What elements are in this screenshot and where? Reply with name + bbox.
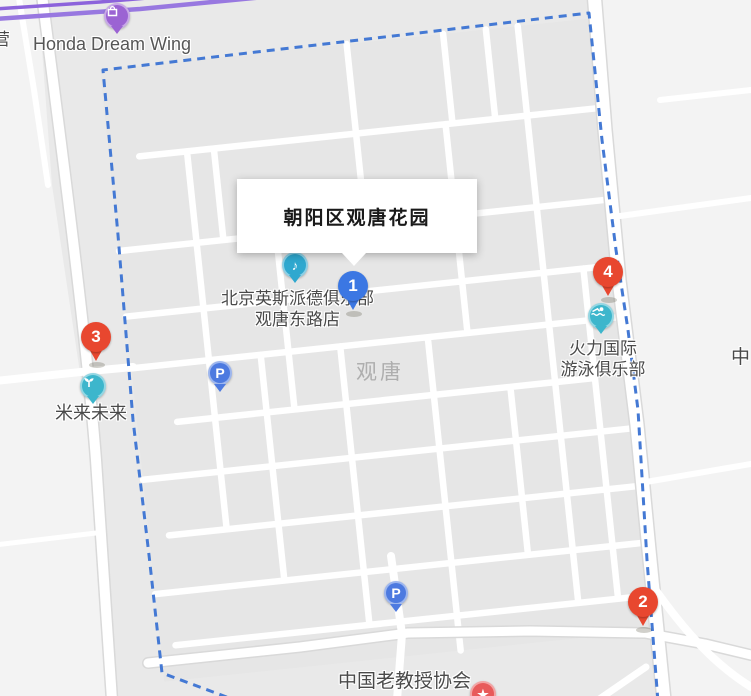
info-window-title: 朝阳区观唐花园: [283, 203, 430, 230]
poi-label-professors[interactable]: 中国老教授协会: [338, 671, 471, 692]
map-canvas[interactable]: 营 中 Honda Dream Wing 观唐 北京英斯派德俱乐部 观唐东路店 …: [0, 0, 751, 696]
parking-icon: P: [391, 586, 400, 600]
poi-badge-club[interactable]: ♪: [282, 252, 308, 278]
info-window[interactable]: 朝阳区观唐花园: [237, 179, 477, 253]
parking-icon: P: [215, 366, 224, 380]
marker-pin-1[interactable]: 1: [338, 271, 368, 317]
edge-label-right: 中: [731, 347, 750, 368]
poi-label-swim-club[interactable]: 火力国际 游泳俱乐部: [541, 338, 665, 380]
marker-pin-4[interactable]: 4: [593, 257, 623, 303]
marker-pin-3[interactable]: 3: [81, 322, 111, 368]
parking-badge-1[interactable]: P: [208, 361, 232, 385]
poi-badge-swim-club[interactable]: [588, 303, 614, 329]
poi-label-swim-line2: 游泳俱乐部: [541, 359, 665, 380]
poi-badge-milai[interactable]: [80, 373, 106, 399]
parking-badge-2[interactable]: P: [384, 581, 408, 605]
marker-number: 3: [81, 322, 111, 352]
poi-badge-honda[interactable]: [104, 3, 130, 29]
poi-label-swim-line1: 火力国际: [541, 338, 665, 359]
marker-pin-2[interactable]: 2: [628, 587, 658, 633]
music-note-icon: ♪: [292, 259, 299, 272]
marker-number: 4: [593, 257, 623, 287]
star-icon: ★: [477, 688, 489, 696]
area-label-guantang: 观唐: [356, 362, 404, 383]
marker-number: 2: [628, 587, 658, 617]
edge-label-left: 营: [0, 29, 10, 50]
marker-number: 1: [338, 271, 368, 301]
